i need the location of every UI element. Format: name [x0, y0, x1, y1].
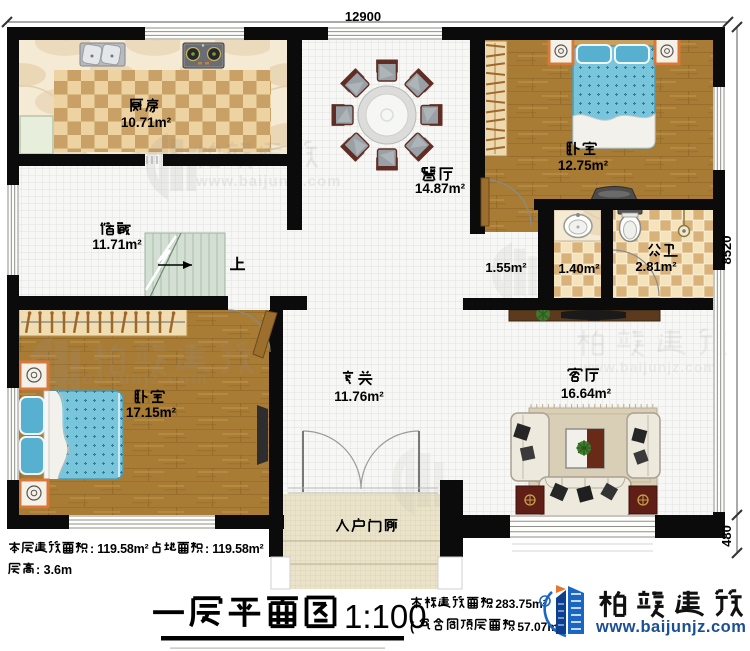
- svg-text:: 119.58m²: : 119.58m²: [205, 542, 263, 556]
- svg-text:12900: 12900: [345, 9, 381, 24]
- svg-text:: 3.6m: : 3.6m: [36, 563, 72, 577]
- svg-text:480: 480: [719, 525, 734, 547]
- svg-text:14.87m²: 14.87m²: [415, 181, 466, 196]
- svg-text:12.75m²: 12.75m²: [558, 158, 609, 173]
- svg-text:1.40m²: 1.40m²: [558, 261, 600, 276]
- svg-text:www.baijunjz.com: www.baijunjz.com: [195, 173, 341, 190]
- svg-text:www.baijunjz.com: www.baijunjz.com: [29, 369, 209, 388]
- svg-text:: 119.58m²: : 119.58m²: [90, 542, 148, 556]
- svg-text:10.71m²: 10.71m²: [121, 115, 172, 130]
- svg-text:16.64m²: 16.64m²: [561, 386, 612, 401]
- svg-text:11.76m²: 11.76m²: [334, 389, 384, 404]
- svg-text:8520: 8520: [719, 236, 734, 265]
- svg-text:: 283.75m²: : 283.75m²: [488, 597, 547, 611]
- svg-text:2.81m²: 2.81m²: [635, 259, 677, 274]
- svg-text:17.15m²: 17.15m²: [126, 405, 177, 420]
- svg-text:www.baijunjz.com: www.baijunjz.com: [579, 359, 717, 375]
- svg-text:1.55m²: 1.55m²: [485, 260, 527, 275]
- svg-text:(: (: [410, 619, 415, 634]
- svg-text:www.baijunjz.com: www.baijunjz.com: [595, 618, 746, 636]
- svg-text:11.71m²: 11.71m²: [92, 237, 142, 252]
